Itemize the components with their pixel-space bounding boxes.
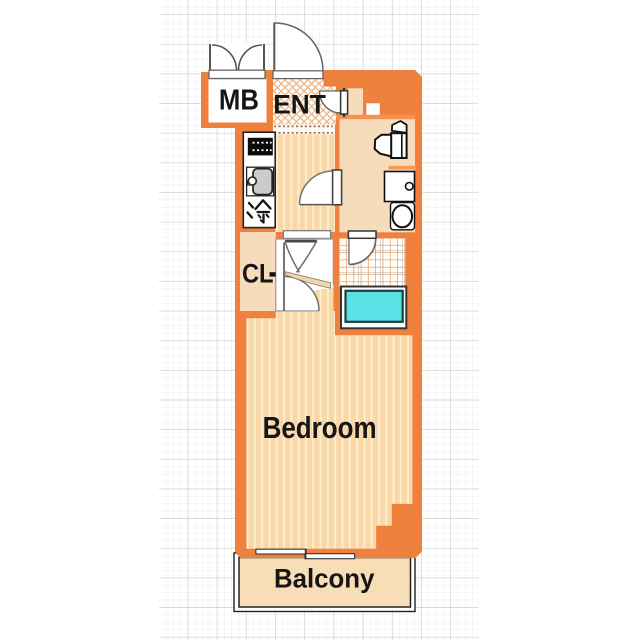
svg-text:CL: CL: [242, 258, 274, 288]
svg-text:Bedroom: Bedroom: [263, 410, 377, 445]
svg-text:Balcony: Balcony: [274, 564, 375, 594]
svg-text:MB: MB: [219, 85, 259, 117]
svg-text:ENT: ENT: [273, 90, 326, 120]
